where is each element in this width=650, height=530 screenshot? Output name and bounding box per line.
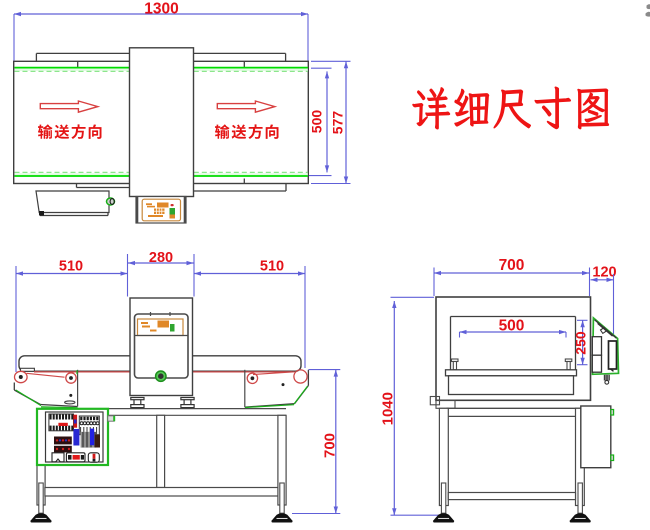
svg-text:250: 250 xyxy=(573,331,589,355)
svg-text:510: 510 xyxy=(260,259,284,275)
svg-text:577: 577 xyxy=(330,111,346,135)
svg-text:700: 700 xyxy=(499,257,525,274)
svg-text:500: 500 xyxy=(499,318,525,335)
svg-text:700: 700 xyxy=(321,433,338,458)
svg-text:280: 280 xyxy=(149,250,173,266)
svg-text:1300: 1300 xyxy=(144,1,178,18)
svg-text:500: 500 xyxy=(309,110,325,134)
svg-text:510: 510 xyxy=(59,259,83,275)
svg-text:1040: 1040 xyxy=(379,392,396,425)
